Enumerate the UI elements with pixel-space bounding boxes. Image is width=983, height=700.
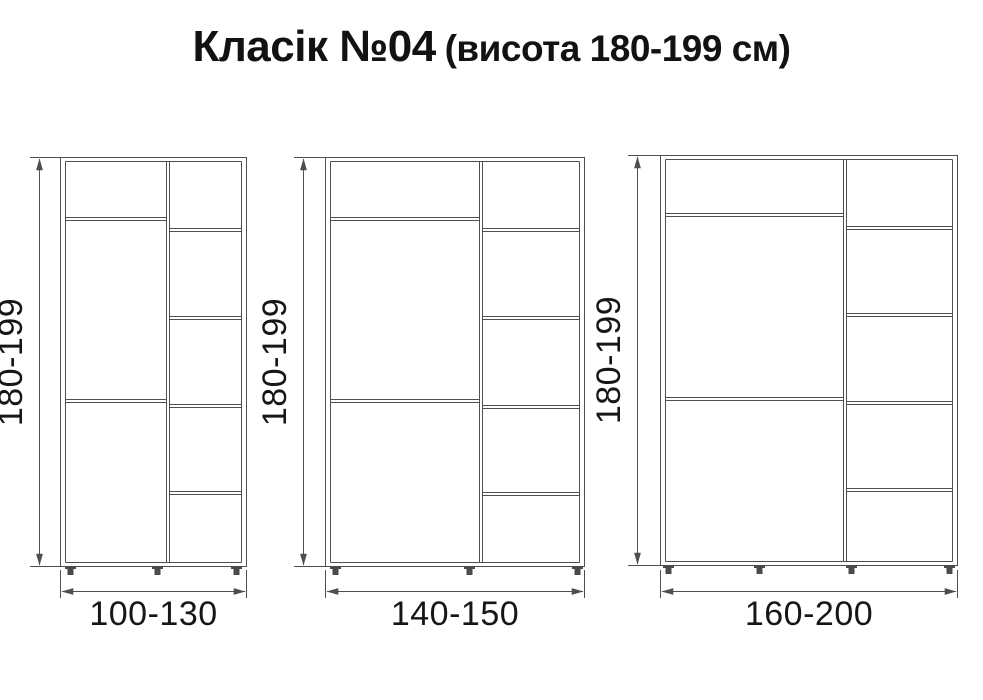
wardrobe-2-width-label: 140-150 [391,595,519,633]
wardrobe-1-shelves [66,218,242,495]
wardrobe-3-height-dimension: 180-199 [590,156,662,566]
wardrobe-2-shelves [331,218,580,496]
wardrobe-3: 180-199 160-200 [590,156,958,634]
wardrobe-1-feet [65,567,242,576]
wardrobe-2-width-dimension: 140-150 [326,570,585,633]
wardrobe-3-height-label: 180-199 [590,296,628,424]
wardrobe-2-cabinet-outline [326,158,585,567]
wardrobe-3-width-dimension: 160-200 [661,570,958,633]
wardrobe-1-height-label: 180-199 [0,298,30,426]
wardrobe-1-width-dimension: 100-130 [61,570,247,633]
wardrobe-2-height-dimension: 180-199 [256,158,327,567]
wardrobe-diagrams-canvas: 180-199 100-130 [0,0,983,700]
wardrobe-2: 180-199 140-150 [256,158,585,634]
wardrobe-2-feet [330,567,583,576]
wardrobe-1-cabinet-outline [61,158,247,567]
wardrobe-3-feet [663,566,955,575]
diagram-page: Класік №04 (висота 180-199 см) [0,0,983,700]
wardrobe-3-shelves [666,214,953,492]
wardrobe-3-width-label: 160-200 [745,595,873,633]
wardrobe-1-height-dimension: 180-199 [0,158,62,567]
wardrobe-2-height-label: 180-199 [256,298,294,426]
wardrobe-1-width-label: 100-130 [89,595,217,633]
wardrobe-1: 180-199 100-130 [0,158,247,634]
